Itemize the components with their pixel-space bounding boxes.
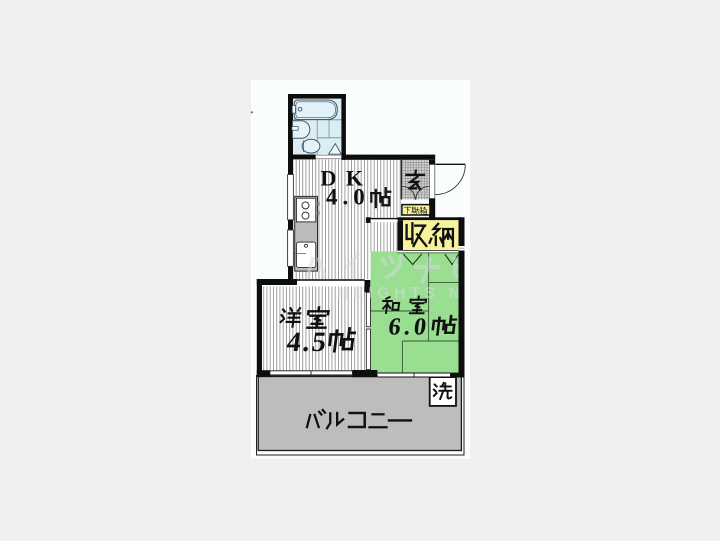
- svg-text:4.5: 4.5: [285, 327, 330, 358]
- svg-text:6.0: 6.0: [387, 313, 431, 340]
- svg-text:4.0: 4.0: [326, 185, 370, 210]
